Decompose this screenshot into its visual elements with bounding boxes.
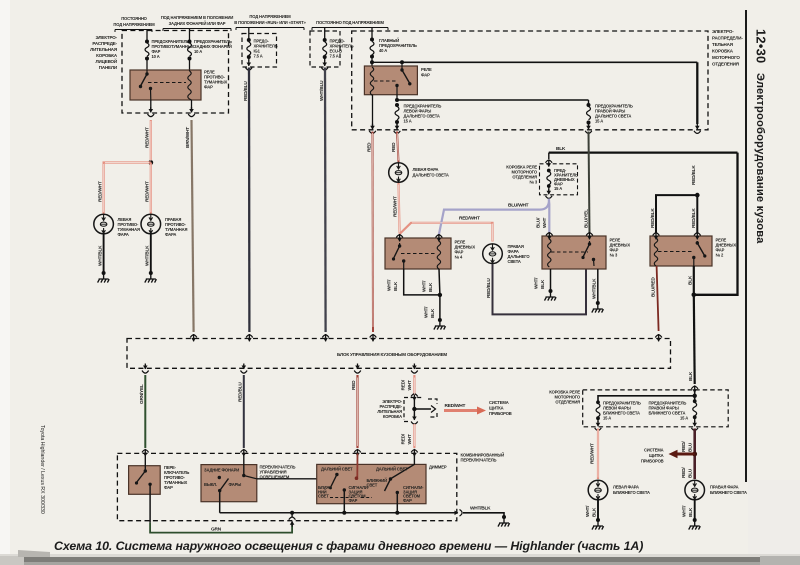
svg-text:№ 4: № 4 [455,255,463,260]
svg-text:РЕЛЕ: РЕЛЕ [421,67,432,72]
svg-text:ЛЕВАЯ ФАРА: ЛЕВАЯ ФАРА [413,167,439,172]
svg-text:RED/: RED/ [681,441,687,452]
svg-text:RED/: RED/ [401,433,407,444]
svg-text:ЛЕВАЯ ФАРА: ЛЕВАЯ ФАРА [613,485,639,490]
svg-text:ФАРА: ФАРА [165,232,176,237]
svg-text:BLK: BLK [592,507,598,517]
svg-text:BLK: BLK [428,282,434,292]
svg-text:15 А: 15 А [680,416,688,421]
svg-text:15 А: 15 А [595,119,603,124]
svg-text:СИСТЕМА: СИСТЕМА [644,448,664,453]
svg-text:BLK: BLK [430,308,436,318]
svg-text:WHT/: WHT/ [424,306,430,318]
svg-text:ЗАДНИХ ФОНАРЕЙ ИЛИ ФАР: ЗАДНИХ ФОНАРЕЙ ИЛИ ФАР [169,21,226,26]
svg-text:GRN: GRN [211,527,222,533]
svg-text:GRN/YEL: GRN/YEL [139,384,145,404]
svg-text:WHT/: WHT/ [422,280,428,292]
svg-text:№ 3: № 3 [610,253,618,258]
svg-text:BLK: BLK [688,507,694,517]
svg-text:ДАЛЬНЕГО СВЕТА: ДАЛЬНЕГО СВЕТА [413,173,449,178]
svg-text:В ПОЛОЖЕНИИ «RUN» ИЛИ «START»: В ПОЛОЖЕНИИ «RUN» ИЛИ «START» [234,20,306,25]
svg-text:10 А: 10 А [194,49,202,54]
svg-text:Toyota Highlander / Lexus RX 3: Toyota Highlander / Lexus RX 300/330 [39,425,45,514]
svg-text:15 А: 15 А [554,186,562,191]
svg-text:ДИММЕР: ДИММЕР [429,465,447,470]
svg-text:WHT/: WHT/ [585,505,591,517]
svg-text:RED: RED [391,142,397,152]
svg-text:BLK: BLK [688,371,694,381]
svg-text:БЛИЖНЕГО СВЕТА: БЛИЖНЕГО СВЕТА [710,490,747,495]
svg-text:Схема 10. Система наружного ос: Схема 10. Система наружного освещения с … [54,539,643,553]
svg-text:BLU: BLU [688,442,694,452]
svg-text:Электрооборудование кузова: Электрооборудование кузова [754,73,766,244]
svg-text:12•30: 12•30 [754,29,769,63]
svg-text:ЭЛЕКТРО-: ЭЛЕКТРО- [712,29,734,34]
svg-text:RED/BLK: RED/BLK [691,208,697,228]
svg-text:BLK: BLK [687,275,693,285]
svg-text:СВЕТ: СВЕТ [367,482,378,487]
svg-text:КОРОБКА: КОРОБКА [383,414,402,419]
svg-text:WHT/BLU: WHT/BLU [319,80,325,101]
svg-text:WHT/BLK: WHT/BLK [98,245,104,266]
svg-text:RED/BLK: RED/BLK [650,208,656,228]
svg-text:ЗАДНИЕ ФОНАРИ: ЗАДНИЕ ФОНАРИ [204,468,239,473]
svg-text:ЛИТЕЛЬНАЯ: ЛИТЕЛЬНАЯ [90,47,117,52]
svg-text:ПРИБОРОВ: ПРИБОРОВ [641,459,664,464]
svg-text:RED/WHT: RED/WHT [145,127,151,148]
svg-text:РАСПРЕДЕЛИ-: РАСПРЕДЕЛИ- [712,36,743,41]
svg-text:ОТДЕЛЕНИЯ: ОТДЕЛЕНИЯ [555,400,580,405]
svg-text:RED/BLU: RED/BLU [243,81,249,101]
svg-text:ФАРЫ: ФАРЫ [229,482,242,487]
svg-text:БЛОК УПРАВЛЕНИЯ КУЗОВНЫМ ОБОРУ: БЛОК УПРАВЛЕНИЯ КУЗОВНЫМ ОБОРУДОВАНИЕМ [337,352,447,357]
svg-text:BLK: BLK [393,281,399,291]
svg-text:РАСПРЕДЕ-: РАСПРЕДЕ- [92,41,117,46]
svg-text:7.5 А: 7.5 А [330,54,339,59]
svg-text:BRN/WHT: BRN/WHT [185,127,191,148]
svg-text:СВЕТ: СВЕТ [318,494,329,499]
svg-text:RED/WHT: RED/WHT [98,181,104,202]
svg-text:ФАР: ФАР [403,498,412,503]
svg-text:15 А: 15 А [404,119,412,124]
svg-text:КОРОБКА: КОРОБКА [96,53,118,58]
svg-text:ЩИТКА: ЩИТКА [489,406,504,411]
svg-text:ПОСТОЯННО ПОД НАПРЯЖЕНИЕМ: ПОСТОЯННО ПОД НАПРЯЖЕНИЕМ [316,20,384,25]
svg-text:ЛИЦЕВОЙ: ЛИЦЕВОЙ [95,57,117,64]
svg-text:WHT/: WHT/ [682,505,688,517]
svg-text:ПАНЕЛИ: ПАНЕЛИ [99,65,117,70]
svg-text:BLK: BLK [556,146,566,152]
svg-text:BLU/RED: BLU/RED [650,277,656,297]
svg-text:RED/BLU: RED/BLU [237,382,243,402]
svg-text:WHT/BLK: WHT/BLK [145,245,151,266]
svg-text:ПОД НАПРЯЖЕНИЕМ В ПОЛОЖЕНИИ: ПОД НАПРЯЖЕНИЕМ В ПОЛОЖЕНИИ [161,15,233,20]
svg-text:BLU: BLU [688,468,694,478]
svg-text:ФАР: ФАР [164,485,173,490]
svg-text:BLU/: BLU/ [536,217,542,228]
svg-text:ВЫКЛ.: ВЫКЛ. [204,482,217,487]
svg-text:ПОСТОЯННО: ПОСТОЯННО [121,16,147,21]
svg-text:15 А: 15 А [603,416,611,421]
svg-text:ДАЛЬНИЙ СВЕТ: ДАЛЬНИЙ СВЕТ [321,467,353,472]
svg-text:WHT/BLK: WHT/BLK [470,506,491,512]
svg-text:ОТДЕЛЕНИЯ: ОТДЕЛЕНИЯ [712,62,739,67]
svg-text:RED/BLU: RED/BLU [486,278,492,298]
svg-text:10 А: 10 А [152,54,160,59]
svg-text:ФАРА: ФАРА [118,232,129,237]
svg-text:WHT/: WHT/ [387,279,393,291]
svg-text:RED/BLK: RED/BLK [691,165,697,185]
svg-text:RED/WHT: RED/WHT [590,443,596,464]
svg-text:WHT: WHT [407,434,413,444]
svg-text:RED/WHT: RED/WHT [445,403,466,409]
svg-text:7.5 А: 7.5 А [254,54,263,59]
svg-text:WHT: WHT [407,380,413,390]
svg-text:ПЕРЕКЛЮЧАТЕЛЬ: ПЕРЕКЛЮЧАТЕЛЬ [461,458,497,463]
svg-text:ФАР: ФАР [421,73,430,78]
svg-text:RED/: RED/ [681,467,687,478]
svg-text:№ 3: № 3 [529,180,537,185]
svg-text:RED/WHT: RED/WHT [145,181,151,202]
svg-text:ДАЛЬНИЙ СВЕТ: ДАЛЬНИЙ СВЕТ [376,467,408,472]
svg-text:ПРИБОРОВ: ПРИБОРОВ [489,411,512,416]
svg-text:БЛИЖНЕГО СВЕТА: БЛИЖНЕГО СВЕТА [613,490,650,495]
svg-text:ФАР: ФАР [204,85,213,90]
svg-text:WHT/: WHT/ [533,277,539,289]
svg-text:BLU/WHT: BLU/WHT [508,203,529,209]
svg-text:ЩИТКА: ЩИТКА [649,453,664,458]
svg-text:№ 2: № 2 [716,253,724,258]
svg-text:МОТОРНОГО: МОТОРНОГО [712,55,740,60]
svg-text:RED/: RED/ [401,379,407,390]
svg-text:RED: RED [366,142,372,152]
svg-text:ПРАВАЯ ФАРА: ПРАВАЯ ФАРА [710,485,739,490]
svg-text:КОРОБКА: КОРОБКА [712,49,734,54]
svg-text:ПОД НАПРЯЖЕНИЕМ: ПОД НАПРЯЖЕНИЕМ [113,22,155,27]
svg-text:RED: RED [351,380,357,390]
svg-text:40 А: 40 А [379,48,387,53]
svg-text:BLU/YEL: BLU/YEL [583,209,589,228]
svg-text:ЭЛЕКТРО-: ЭЛЕКТРО- [95,35,117,40]
svg-text:ПОД НАПРЯЖЕНИЕМ: ПОД НАПРЯЖЕНИЕМ [249,14,291,19]
svg-text:ТЕЛЬНАЯ: ТЕЛЬНАЯ [712,42,733,47]
svg-text:RED/WHT: RED/WHT [459,216,480,222]
svg-text:WHT: WHT [542,218,548,228]
svg-text:WHT/BLK: WHT/BLK [591,278,597,299]
svg-text:RED/WHT: RED/WHT [393,196,399,217]
svg-text:BLK: BLK [540,279,546,289]
svg-text:СВЕТА: СВЕТА [508,259,521,264]
svg-text:ФАР: ФАР [349,498,358,503]
svg-text:СИСТЕМА: СИСТЕМА [489,400,509,405]
